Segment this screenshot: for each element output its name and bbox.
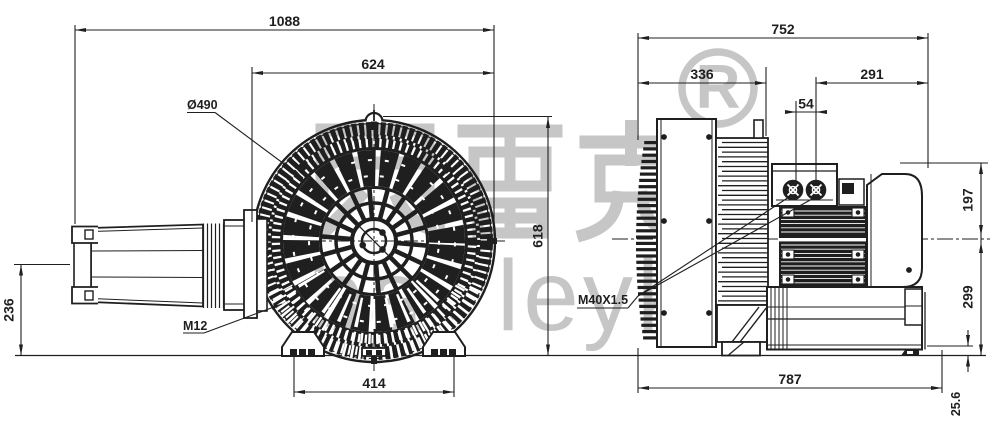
- svg-text:M12: M12: [183, 319, 207, 333]
- svg-text:291: 291: [860, 66, 884, 82]
- svg-text:618: 618: [530, 224, 546, 248]
- svg-text:624: 624: [361, 56, 385, 72]
- svg-text:787: 787: [778, 371, 802, 387]
- svg-text:197: 197: [960, 188, 976, 212]
- svg-text:25.6: 25.6: [949, 392, 963, 416]
- svg-text:1088: 1088: [269, 13, 300, 29]
- svg-text:236: 236: [1, 298, 17, 322]
- svg-text:299: 299: [960, 285, 976, 309]
- svg-text:336: 336: [690, 66, 714, 82]
- svg-text:54: 54: [798, 96, 814, 112]
- svg-text:R: R: [696, 53, 741, 122]
- svg-text:Ø490: Ø490: [187, 98, 218, 112]
- svg-text:M40X1.5: M40X1.5: [578, 293, 628, 307]
- svg-text:752: 752: [771, 21, 795, 37]
- svg-text:414: 414: [362, 375, 386, 391]
